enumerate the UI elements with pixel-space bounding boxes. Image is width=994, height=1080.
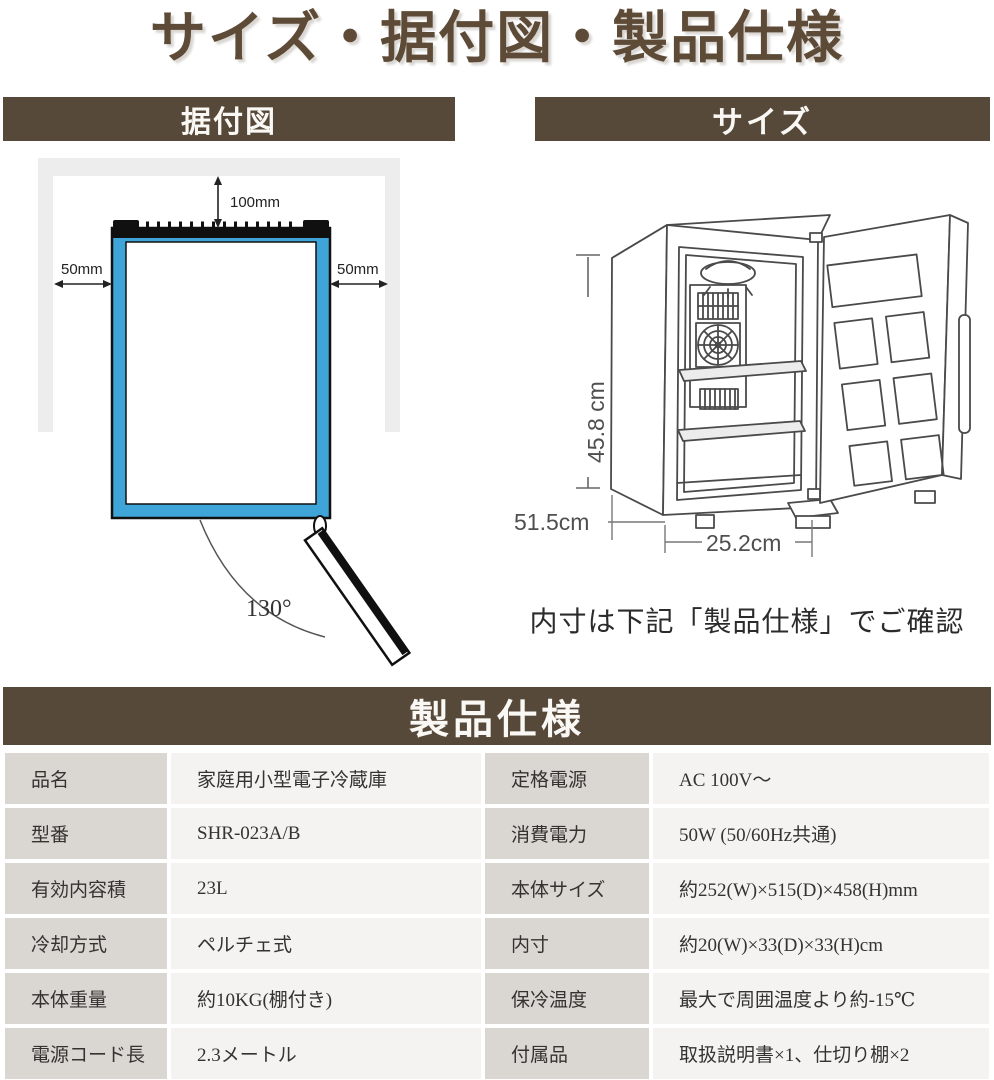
hinge-foot [796, 516, 830, 528]
cabinet-side-face [611, 225, 667, 515]
spec-label-cell: 本体重量 [5, 973, 167, 1024]
spec-value-cell: 約252(W)×515(D)×458(H)mm [653, 863, 989, 914]
installation-section-header: 据付図 [3, 97, 455, 141]
installation-diagram: 100mm 50mm 50mm 130° [0, 150, 460, 680]
installation-header-label: 据付図 [181, 97, 277, 141]
height-dimension-label: 45.8 cm [583, 381, 609, 463]
door-foot [915, 491, 935, 503]
spec-value-cell: ペルチェ式 [171, 918, 481, 969]
door-hinge-bottom [808, 489, 820, 499]
size-diagram: 45.8 cm [500, 185, 994, 605]
right-clearance-label: 50mm [337, 261, 379, 278]
spec-value-cell: 最大で周囲温度より約-15℃ [653, 973, 989, 1024]
inner-size-note: 内寸は下記「製品仕様」でご確認 [500, 600, 994, 640]
spec-label-cell: 内寸 [485, 918, 649, 969]
page-title: サイズ・据付図・製品仕様 [0, 0, 994, 80]
fridge-illustration [611, 215, 970, 528]
spec-label-cell: 定格電源 [485, 753, 649, 804]
door-handle [959, 315, 970, 433]
spec-value-cell: 50W (50/60Hz共通) [653, 808, 989, 859]
spec-value-cell: 約20(W)×33(D)×33(H)cm [653, 918, 989, 969]
open-door [305, 528, 409, 665]
hinge-block-left [113, 220, 139, 234]
specs-section-header: 製品仕様 [3, 687, 991, 745]
front-foot [696, 515, 714, 528]
spec-value-cell: 取扱説明書×1、仕切り棚×2 [653, 1028, 989, 1079]
depth-dimension-label: 51.5cm [514, 509, 589, 535]
spec-label-cell: 電源コード長 [5, 1028, 167, 1079]
spec-label-cell: 保冷温度 [485, 973, 649, 1024]
door-angle-label: 130° [246, 596, 292, 622]
spec-label-cell: 消費電力 [485, 808, 649, 859]
door-hinge-top [810, 233, 822, 242]
hinge-block-right [303, 220, 329, 234]
clearance-arrow-top [214, 176, 222, 228]
spec-value-cell: AC 100V〜 [653, 753, 989, 804]
spec-table: 品名 家庭用小型電子冷蔵庫 定格電源 AC 100V〜 型番 SHR-023A/… [5, 753, 989, 1079]
spec-label-cell: 本体サイズ [485, 863, 649, 914]
spec-value-cell: 23L [171, 863, 481, 914]
size-header-label: サイズ [712, 97, 813, 142]
left-clearance-label: 50mm [61, 261, 103, 278]
spec-value-cell: 家庭用小型電子冷蔵庫 [171, 753, 481, 804]
spec-value-cell: 約10KG(棚付き) [171, 973, 481, 1024]
clearance-arrow-right [330, 280, 388, 288]
spec-label-cell: 有効内容積 [5, 863, 167, 914]
spec-value-cell: 2.3メートル [171, 1028, 481, 1079]
top-clearance-label: 100mm [230, 194, 280, 211]
clearance-arrow-left [54, 280, 112, 288]
spec-label-cell: 付属品 [485, 1028, 649, 1079]
spec-label-cell: 品名 [5, 753, 167, 804]
width-dimension-label: 25.2cm [706, 530, 781, 556]
size-section-header: サイズ [535, 97, 990, 141]
spec-value-cell: SHR-023A/B [171, 808, 481, 859]
fridge-top-view [112, 220, 330, 518]
spec-label-cell: 冷却方式 [5, 918, 167, 969]
specs-header-label: 製品仕様 [409, 687, 585, 745]
spec-label-cell: 型番 [5, 808, 167, 859]
